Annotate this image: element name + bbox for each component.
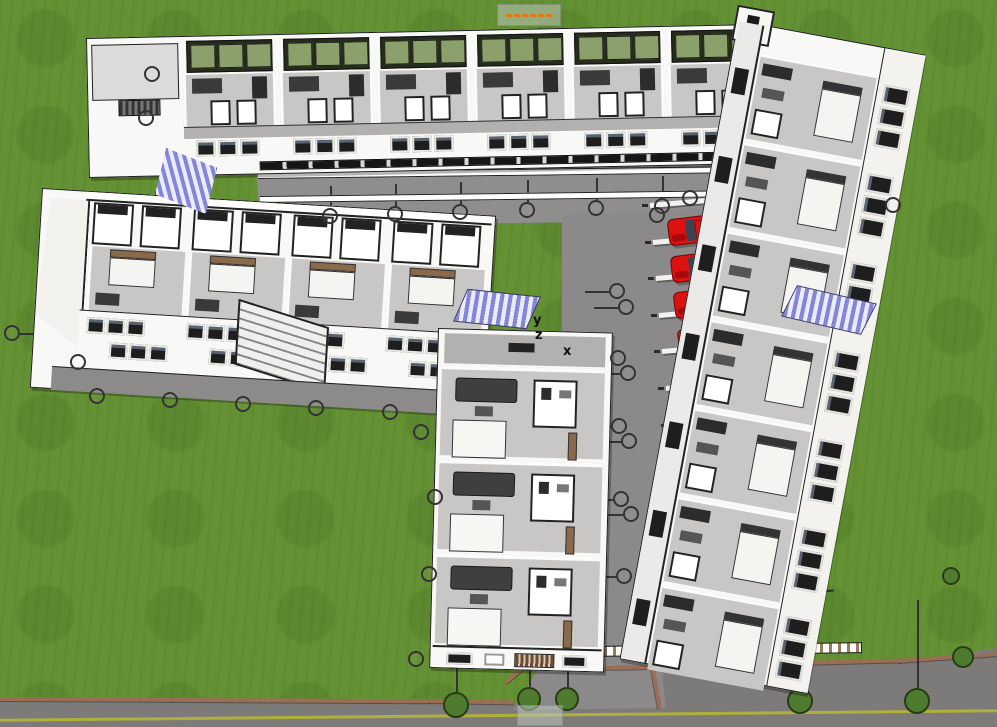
bathroom-pod <box>668 551 700 582</box>
wardrobe <box>761 63 793 80</box>
window-sill-dark <box>397 223 427 234</box>
room-module <box>182 37 278 173</box>
window-group <box>487 133 551 152</box>
bed <box>764 354 812 408</box>
window-pane <box>412 136 431 152</box>
bathroom-pod <box>333 97 354 122</box>
window-pane <box>487 134 506 150</box>
desk <box>728 265 751 279</box>
window-pane <box>126 319 145 336</box>
corridor-window <box>714 156 733 184</box>
window-pane <box>849 262 878 284</box>
glazing-group <box>186 39 273 73</box>
window-pane <box>86 317 105 334</box>
room-module <box>746 54 878 160</box>
window-pane <box>408 361 427 378</box>
window-pane <box>293 138 312 154</box>
sink-fixture <box>557 484 569 492</box>
tv-console <box>508 343 534 353</box>
wardrobe <box>446 72 461 94</box>
bathroom-pod <box>307 98 328 123</box>
room-interior <box>183 73 277 129</box>
glazing-panel <box>246 43 271 68</box>
glazing-group <box>574 31 661 65</box>
room-module <box>473 31 569 167</box>
bathroom-pod <box>501 94 522 119</box>
glazing-panel <box>537 37 562 62</box>
window-pane <box>562 655 586 668</box>
corridor-window <box>649 510 668 538</box>
glazing-panel <box>315 42 340 67</box>
bathroom-pod <box>685 463 717 494</box>
glazing-panel <box>703 34 728 59</box>
bed <box>447 607 502 646</box>
glazing-panel <box>509 38 534 63</box>
glazing-panel <box>606 36 631 61</box>
window-pane <box>509 134 528 150</box>
toilet-fixture <box>539 482 549 494</box>
room-module <box>713 231 845 337</box>
bedroom-floor <box>86 246 186 316</box>
corridor-window <box>681 333 700 361</box>
annotation-tag-bottom <box>517 705 563 726</box>
corridor-window <box>632 598 651 626</box>
window-group <box>856 173 896 243</box>
bed <box>715 619 763 673</box>
wardrobe <box>349 74 364 96</box>
axis-y-label: y <box>533 314 541 327</box>
bathroom-pod <box>532 380 577 429</box>
window-group <box>86 317 147 338</box>
room-interior <box>280 71 374 127</box>
corridor-window <box>698 244 717 272</box>
tree-symbol <box>942 567 960 585</box>
bed <box>308 269 356 300</box>
window-pane <box>584 132 603 148</box>
wardrobe <box>696 417 728 434</box>
window-pane <box>337 137 356 153</box>
window-group <box>293 137 357 156</box>
desk <box>295 305 320 318</box>
wing-top <box>86 24 773 178</box>
wing-bottom <box>429 328 613 672</box>
wardrobe <box>745 152 777 169</box>
window-pane <box>186 323 205 340</box>
room-interior <box>571 65 665 121</box>
room-module <box>680 408 812 514</box>
wardrobe <box>252 76 267 98</box>
window-pane <box>877 106 906 128</box>
room-module <box>385 220 487 334</box>
window-pane <box>206 324 225 341</box>
desk <box>679 530 702 544</box>
sink-fixture <box>559 390 571 398</box>
bed <box>483 72 513 88</box>
window-pane <box>196 140 215 156</box>
sofa <box>453 471 516 497</box>
room-module <box>664 496 796 602</box>
room-interior <box>377 69 471 125</box>
axis-z-label: z <box>535 329 543 342</box>
window-pane <box>315 138 334 154</box>
wing-left <box>30 188 496 415</box>
window-pane <box>129 344 148 361</box>
glazing-panel <box>578 36 603 61</box>
window-pane <box>799 527 828 549</box>
room-module <box>437 459 602 553</box>
window-pane <box>434 135 453 151</box>
window-pane <box>845 283 874 305</box>
window-sill-dark <box>445 226 475 237</box>
window-pane <box>326 332 345 349</box>
window-pane <box>824 394 853 416</box>
window-pane <box>149 345 168 362</box>
sofa <box>450 565 513 591</box>
bathroom-pod <box>718 286 750 317</box>
wardrobe <box>640 68 655 90</box>
window-group <box>196 139 260 158</box>
annotation-dashed-line <box>506 14 552 17</box>
room-module <box>729 142 861 248</box>
glazing-panel <box>412 40 437 65</box>
bed <box>289 76 319 92</box>
window-pane <box>873 128 902 150</box>
sofa <box>455 377 518 403</box>
window-pane <box>795 549 824 571</box>
window-pane <box>881 85 910 107</box>
window-pane <box>606 132 625 148</box>
desk <box>95 292 120 305</box>
bed <box>408 276 456 307</box>
bed <box>780 265 828 319</box>
window-pane <box>328 356 347 373</box>
window-pane <box>779 637 808 659</box>
window-pane <box>348 357 367 374</box>
glazing-panel <box>384 40 409 65</box>
window-group <box>390 135 454 154</box>
bathroom-pod <box>404 96 425 121</box>
glazing-panel <box>440 39 465 64</box>
bed <box>208 263 256 294</box>
window-pane <box>386 335 405 352</box>
room-module <box>86 202 188 316</box>
wardrobe <box>729 240 761 257</box>
bed <box>386 74 416 90</box>
sink-fixture <box>554 578 566 586</box>
window-pane <box>531 133 550 149</box>
wardrobe <box>679 506 711 523</box>
room-module <box>440 365 605 459</box>
window-pane <box>841 305 870 327</box>
bathroom-pod <box>530 473 575 522</box>
bathroom-pod <box>528 567 573 616</box>
wardrobe <box>712 329 744 346</box>
window-sill-dark <box>345 220 375 231</box>
toilet-fixture <box>541 388 551 400</box>
window-group <box>873 85 913 155</box>
window-pane <box>681 130 700 146</box>
window-sill-dark <box>245 213 275 224</box>
glazing-group <box>380 35 467 69</box>
bathroom-pod <box>652 640 684 671</box>
bed <box>748 442 796 496</box>
axis-x-label: x <box>563 345 571 358</box>
room-module <box>185 208 287 322</box>
desk <box>712 353 735 367</box>
bathroom-pod <box>210 100 231 125</box>
window-group <box>774 616 814 686</box>
street-facade <box>432 645 602 671</box>
window-pane <box>812 460 841 482</box>
glazing-panel <box>343 41 368 66</box>
desk <box>696 442 719 456</box>
corridor-window <box>731 67 750 95</box>
bathroom-pod <box>695 90 716 115</box>
window-pane <box>218 140 237 156</box>
window-pane <box>865 173 894 195</box>
bed <box>452 419 507 458</box>
bed <box>797 177 845 231</box>
window-pane <box>775 659 804 681</box>
model-viewport[interactable]: y z x <box>0 0 997 727</box>
wardrobe <box>543 70 558 92</box>
coffee-table <box>470 594 488 604</box>
room-module <box>435 553 600 647</box>
bed <box>580 70 610 86</box>
window-sill-dark <box>297 217 327 228</box>
coffee-table <box>475 406 493 416</box>
toilet-fixture <box>536 576 546 588</box>
glazing-panel <box>190 44 215 69</box>
window-pane <box>783 616 812 638</box>
window-group <box>823 350 863 420</box>
window-pane <box>808 482 837 504</box>
window-group <box>109 342 170 363</box>
kitchen-counter <box>565 526 575 554</box>
window-sill-dark <box>197 211 227 222</box>
window-group <box>807 439 847 509</box>
wardrobe <box>663 594 695 611</box>
bathroom-pod <box>527 93 548 118</box>
bathroom-pod <box>430 95 451 120</box>
roof-vent-grille <box>118 99 160 116</box>
glazing-panel <box>634 35 659 60</box>
window-group <box>840 262 880 332</box>
window-pane <box>390 136 409 152</box>
desk <box>745 176 768 190</box>
window-pane <box>816 439 845 461</box>
site-marker-circle <box>4 325 20 341</box>
desk <box>663 619 686 633</box>
window-pane <box>857 217 886 239</box>
window-pane <box>209 349 228 366</box>
room-module <box>696 319 828 425</box>
bathroom-pod <box>734 197 766 228</box>
glazing-panel <box>287 42 312 67</box>
window-pane <box>406 337 425 354</box>
bed <box>731 531 779 585</box>
vent-grille <box>514 653 554 668</box>
window-pane <box>628 131 647 147</box>
room-module <box>376 33 472 169</box>
site-marker-circle <box>408 651 424 667</box>
glazing-panel <box>481 38 506 63</box>
window-group <box>584 131 648 150</box>
coffee-table <box>472 500 490 510</box>
bathroom-pod <box>598 92 619 117</box>
window-pane <box>484 653 504 666</box>
annotation-tag-top <box>497 4 561 26</box>
site-marker-circle <box>413 424 429 440</box>
corridor-window <box>665 421 684 449</box>
window-pane <box>109 342 128 359</box>
window-pane <box>828 372 857 394</box>
room-module <box>279 35 375 171</box>
bed <box>677 68 707 84</box>
window-pane <box>832 350 861 372</box>
window-pane <box>791 571 820 593</box>
window-sill-dark <box>98 204 128 215</box>
bed <box>813 88 861 142</box>
window-group <box>791 527 831 597</box>
desk <box>394 311 419 324</box>
bathroom-pod <box>236 99 257 124</box>
bed <box>108 257 156 288</box>
bathroom-pod <box>624 91 645 116</box>
glazing-group <box>477 33 564 67</box>
roof-cap-left <box>91 43 179 101</box>
window-pane <box>106 318 125 335</box>
window-sill-dark <box>145 207 175 218</box>
window-pane <box>446 652 472 665</box>
window-pane <box>861 195 890 217</box>
bed <box>449 513 504 552</box>
glazing-panel <box>675 34 700 59</box>
bedroom-floor <box>385 264 485 334</box>
glazing-group <box>283 37 370 71</box>
bed <box>192 78 222 94</box>
room-module <box>285 214 387 328</box>
bathroom-pod <box>750 109 782 140</box>
kitchen-counter <box>568 432 578 460</box>
bathroom-pod <box>701 374 733 405</box>
glazing-panel <box>218 44 243 69</box>
room-module <box>570 29 666 165</box>
room-interior <box>474 67 568 123</box>
window-pane <box>240 139 259 155</box>
kitchen-counter <box>563 620 573 648</box>
desk <box>195 299 220 312</box>
desk <box>761 88 784 102</box>
